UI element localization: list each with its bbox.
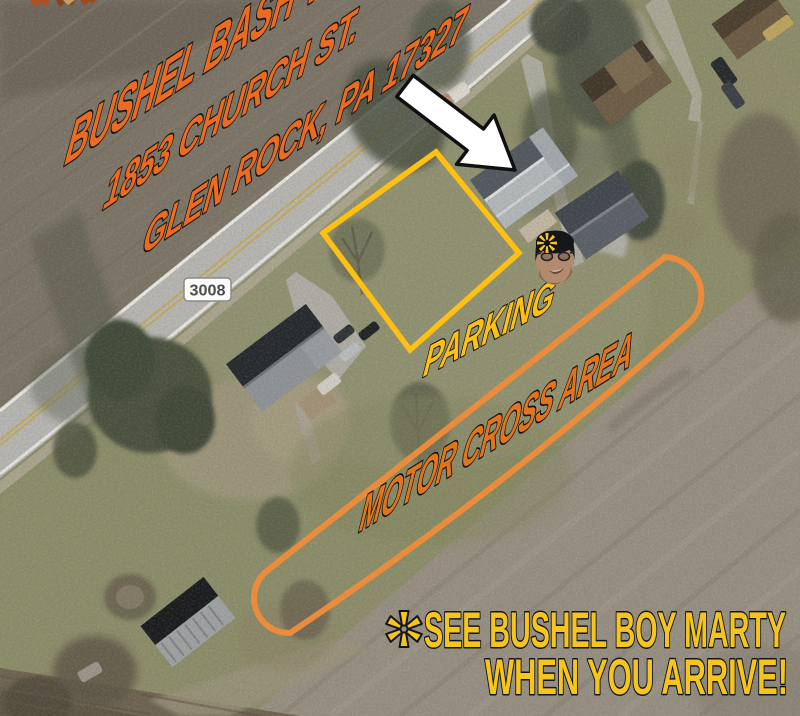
svg-text:WHEN YOU ARRIVE!: WHEN YOU ARRIVE! (485, 649, 788, 705)
svg-text:3008: 3008 (190, 283, 226, 300)
